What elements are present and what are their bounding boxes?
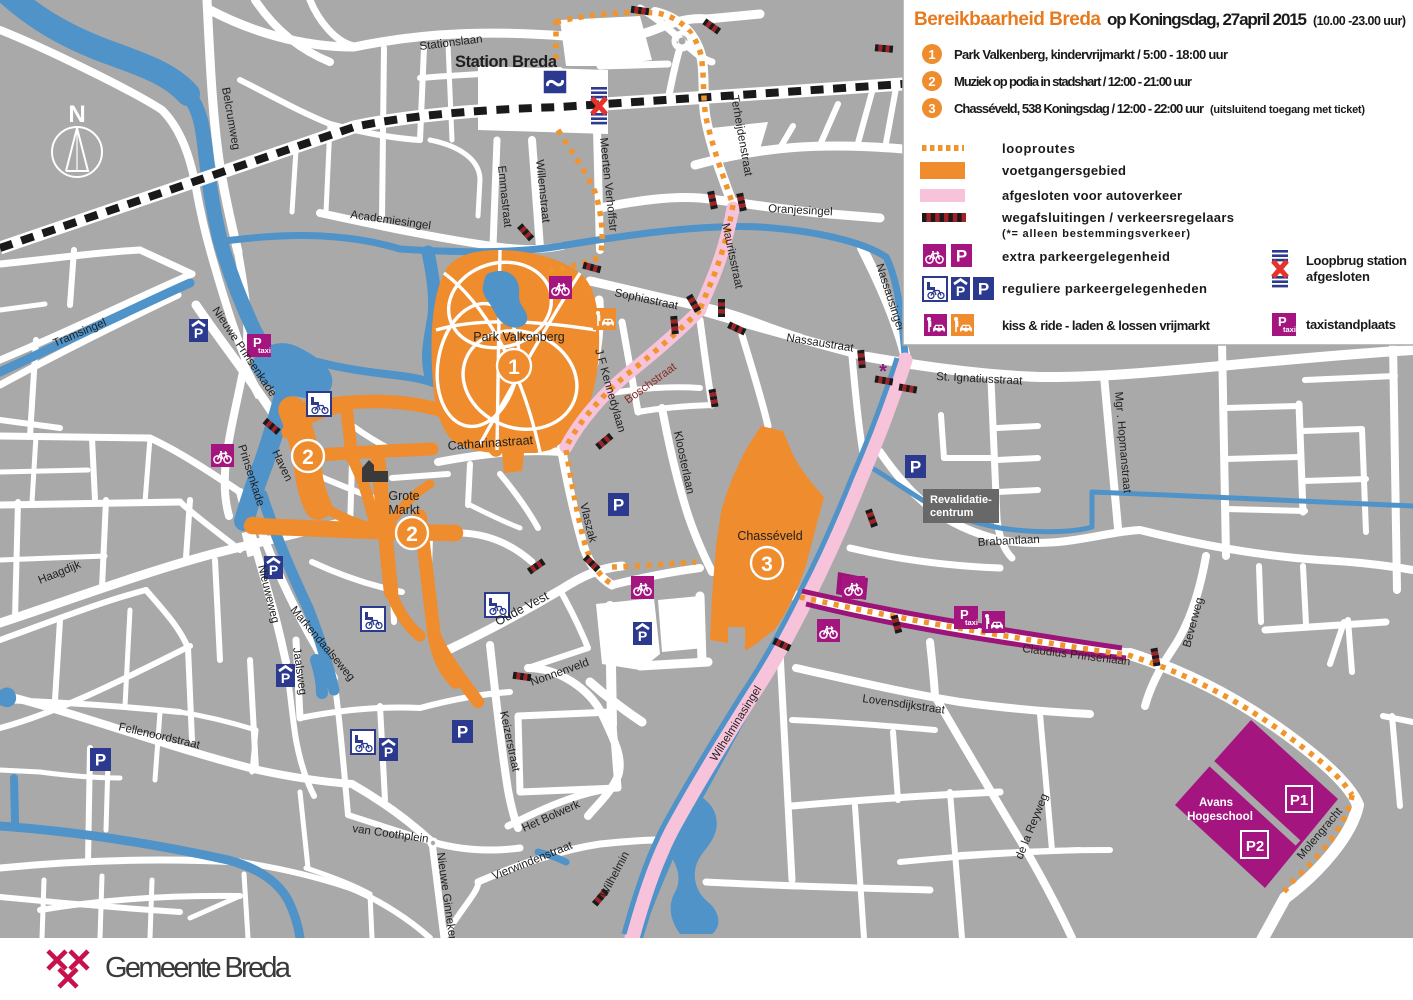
svg-text:Park Valkenberg: Park Valkenberg	[473, 330, 565, 344]
svg-text:1: 1	[928, 47, 935, 62]
svg-text:reguliere parkeergelegenheden: reguliere parkeergelegenheden	[1002, 281, 1207, 296]
svg-text:P: P	[956, 247, 967, 266]
svg-text:looproutes: looproutes	[1002, 141, 1075, 156]
svg-text:Muziek op podia in stadshart /: Muziek op podia in stadshart / 12:00 - 2…	[954, 74, 1192, 89]
svg-text:3: 3	[928, 101, 935, 116]
svg-text:N: N	[68, 101, 85, 128]
svg-text:(10.00 -23.00 uur): (10.00 -23.00 uur)	[1313, 14, 1406, 28]
svg-text:kiss & ride - laden & lossen: kiss & ride - laden & lossen vrijmarkt	[1002, 318, 1211, 333]
svg-text:op Koningsdag, 27april 2015: op Koningsdag, 27april 2015	[1107, 10, 1307, 29]
svg-text:Grote: Grote	[388, 489, 419, 503]
svg-text:Revalidatie-: Revalidatie-	[930, 494, 992, 506]
svg-text:Loopbrug station: Loopbrug station	[1306, 253, 1407, 268]
svg-text:wegafsluitingen / verkeersrege: wegafsluitingen / verkeersregelaars	[1001, 210, 1234, 225]
svg-text:extra parkeergelegenheid: extra parkeergelegenheid	[1002, 249, 1170, 264]
svg-text:*: *	[879, 361, 887, 383]
svg-text:Markt: Markt	[388, 503, 420, 517]
svg-text:Park Valkenberg, kindervrijmar: Park Valkenberg, kindervrijmarkt / 5:00 …	[954, 47, 1228, 62]
svg-text:Station Breda: Station Breda	[455, 53, 558, 71]
svg-text:Hogeschool: Hogeschool	[1187, 811, 1253, 823]
svg-text:taxistandplaats: taxistandplaats	[1306, 317, 1396, 332]
svg-text:P1: P1	[1290, 792, 1308, 809]
svg-text:Avans: Avans	[1199, 797, 1233, 809]
svg-text:Chasséveld, 538 Koningsdag / 1: Chasséveld, 538 Koningsdag / 12:00 - 22:…	[954, 101, 1204, 116]
svg-text:P2: P2	[1246, 838, 1264, 855]
svg-text:2: 2	[928, 74, 935, 89]
svg-text:(*= alleen bestemmingsverkeer): (*= alleen bestemmingsverkeer)	[1002, 228, 1190, 240]
svg-text:afgesloten: afgesloten	[1306, 269, 1370, 284]
svg-text:voetgangersgebied: voetgangersgebied	[1002, 163, 1126, 178]
svg-text:Gemeente Breda: Gemeente Breda	[105, 952, 292, 984]
svg-text:(uitsluitend toegang met ticke: (uitsluitend toegang met ticket)	[1210, 104, 1365, 116]
svg-text:Bereikbaarheid Breda: Bereikbaarheid Breda	[914, 9, 1101, 30]
svg-text:centrum: centrum	[930, 507, 974, 519]
svg-text:3: 3	[761, 553, 773, 576]
svg-text:2: 2	[406, 523, 418, 546]
svg-text:2: 2	[302, 446, 314, 469]
svg-text:afgesloten voor autoverkeer: afgesloten voor autoverkeer	[1002, 188, 1182, 203]
svg-text:Chasséveld: Chasséveld	[737, 529, 802, 543]
svg-text:1: 1	[508, 356, 520, 379]
